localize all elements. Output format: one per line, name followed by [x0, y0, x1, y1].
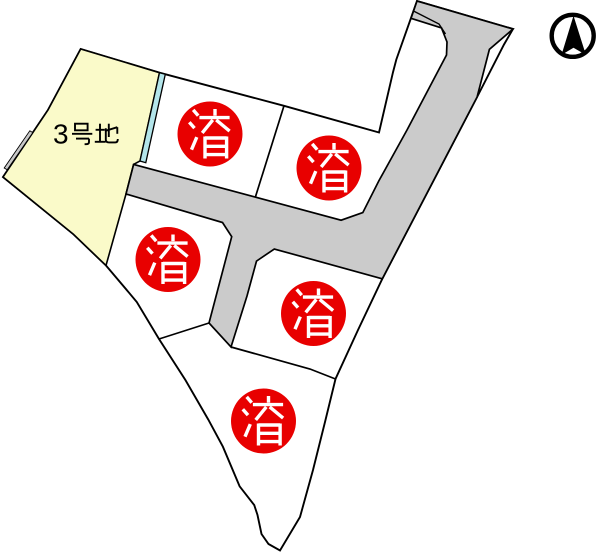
svg-text:3: 3 [53, 119, 69, 150]
